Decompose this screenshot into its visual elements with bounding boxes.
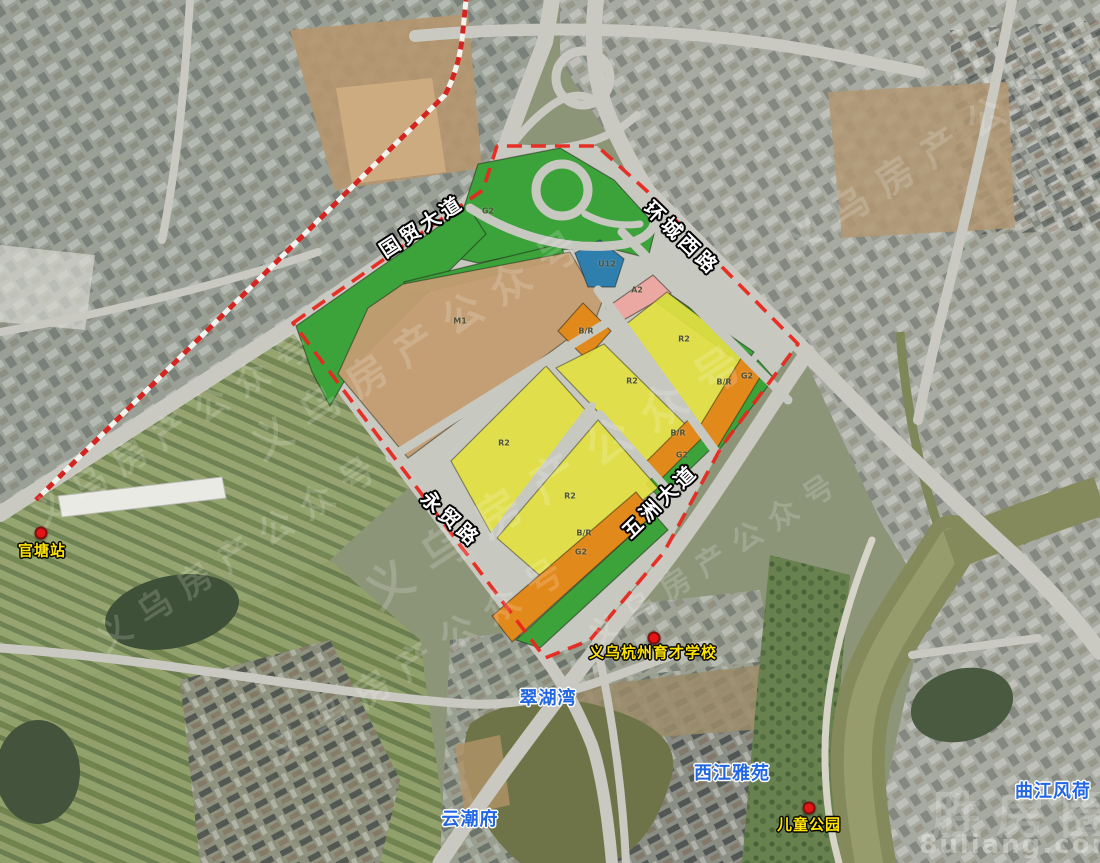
poi-dot-school [648, 632, 661, 645]
satellite-map[interactable]: 义乌房产公众号 义乌房产公众号 义乌房产公众号 义乌房产公众号 义乌房产公众号 … [0, 0, 1100, 863]
map-canvas [0, 0, 1100, 863]
poi-dot-kids-park [803, 802, 816, 815]
poi-dot-guantang-station [35, 527, 48, 540]
